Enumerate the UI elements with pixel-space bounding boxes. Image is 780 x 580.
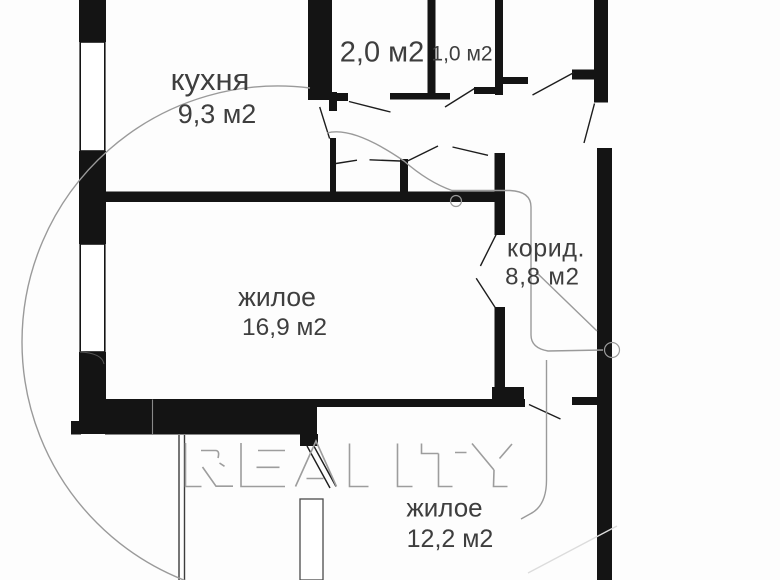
svg-text:жилое: жилое — [406, 493, 482, 523]
svg-text:кухня: кухня — [171, 62, 250, 97]
svg-text:16,9 м2: 16,9 м2 — [242, 314, 327, 341]
svg-text:9,3 м2: 9,3 м2 — [178, 99, 257, 129]
svg-text:12,2 м2: 12,2 м2 — [407, 525, 494, 553]
svg-text:2,0 м2: 2,0 м2 — [340, 37, 424, 69]
svg-text:жилое: жилое — [238, 282, 316, 312]
svg-text:корид.: корид. — [507, 235, 585, 263]
svg-text:8,8 м2: 8,8 м2 — [505, 264, 580, 291]
svg-text:1,0 м2: 1,0 м2 — [431, 43, 492, 66]
